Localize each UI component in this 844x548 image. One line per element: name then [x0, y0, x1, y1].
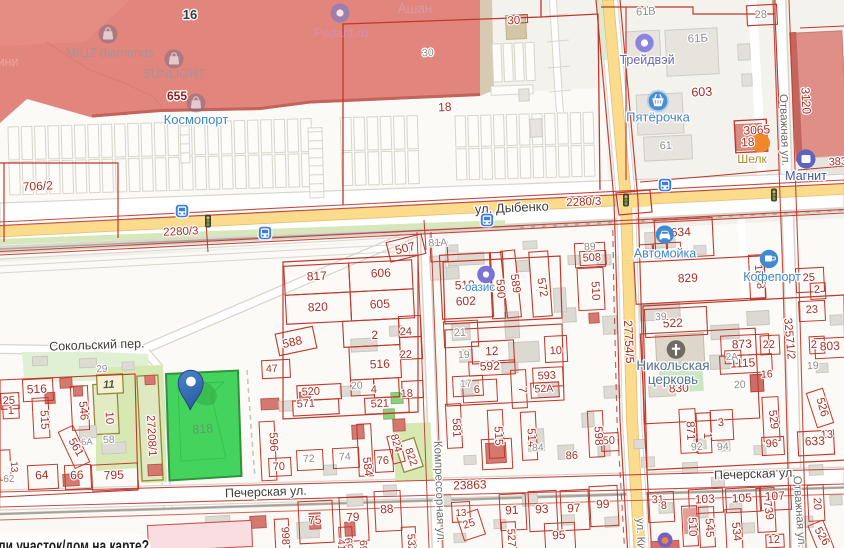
svg-text:21: 21: [453, 327, 466, 340]
svg-text:508: 508: [582, 252, 601, 265]
svg-text:84: 84: [532, 442, 544, 455]
svg-text:27208/1: 27208/1: [144, 415, 158, 457]
svg-text:19: 19: [458, 349, 470, 362]
svg-text:61Б: 61Б: [687, 32, 708, 45]
svg-text:Трейдвэй: Трейдвэй: [619, 53, 674, 67]
svg-text:Пятёрочка: Пятёрочка: [626, 110, 690, 125]
svg-text:76: 76: [376, 455, 389, 468]
svg-text:602: 602: [455, 293, 476, 308]
svg-text:2: 2: [810, 339, 817, 351]
svg-text:99: 99: [596, 497, 610, 512]
svg-text:545: 545: [703, 518, 716, 538]
svg-text:871: 871: [684, 421, 697, 441]
svg-text:3120: 3120: [798, 87, 813, 115]
svg-text:Магнит: Магнит: [785, 169, 827, 183]
svg-text:7: 7: [516, 386, 528, 393]
svg-text:70: 70: [272, 461, 285, 474]
svg-text:ул. Ки: ул. Ки: [633, 518, 646, 548]
svg-text:10: 10: [549, 345, 562, 358]
svg-text:605: 605: [369, 296, 390, 311]
svg-text:12: 12: [767, 534, 780, 547]
svg-text:8: 8: [660, 500, 667, 512]
svg-text:13: 13: [8, 461, 20, 473]
svg-text:2280/3: 2280/3: [163, 225, 199, 239]
svg-text:17: 17: [460, 378, 472, 391]
svg-text:61: 61: [659, 140, 672, 153]
svg-text:515: 515: [492, 426, 505, 446]
svg-text:Печерская ул.: Печерская ул.: [714, 466, 796, 483]
svg-text:75: 75: [308, 513, 322, 528]
svg-text:795: 795: [103, 467, 124, 482]
svg-text:581: 581: [450, 418, 463, 438]
svg-text:817: 817: [306, 268, 327, 283]
svg-text:105: 105: [731, 490, 752, 505]
svg-text:ли участок/дом на карте?: ли участок/дом на карте?: [0, 538, 149, 548]
svg-text:96: 96: [765, 438, 778, 451]
svg-text:590: 590: [493, 279, 506, 299]
svg-text:16: 16: [761, 368, 773, 381]
svg-text:510: 510: [589, 281, 602, 301]
svg-text:86: 86: [565, 450, 578, 463]
svg-text:633: 633: [804, 433, 825, 448]
svg-text:Отважная ул.: Отважная ул.: [777, 94, 792, 166]
svg-text:39: 39: [655, 311, 667, 324]
svg-text:820: 820: [307, 299, 328, 314]
svg-text:510: 510: [686, 517, 699, 537]
svg-text:52А: 52А: [534, 383, 553, 396]
svg-text:516: 516: [26, 381, 47, 396]
svg-text:516: 516: [369, 356, 390, 371]
svg-text:20: 20: [734, 379, 746, 392]
svg-text:92: 92: [691, 441, 703, 454]
svg-text:89: 89: [584, 241, 596, 254]
svg-text:606: 606: [370, 265, 391, 280]
svg-text:12: 12: [485, 344, 499, 359]
svg-text:6А: 6А: [81, 437, 94, 449]
svg-text:22: 22: [399, 349, 412, 362]
svg-text:Кофепорт: Кофепорт: [743, 270, 801, 284]
svg-text:95: 95: [552, 528, 566, 543]
svg-text:584: 584: [360, 456, 374, 477]
svg-text:41: 41: [335, 539, 348, 548]
svg-text:72: 72: [303, 453, 315, 466]
svg-text:11: 11: [103, 379, 115, 392]
svg-text:SUNLIGHT: SUNLIGHT: [142, 67, 206, 81]
svg-text:61В: 61В: [636, 6, 656, 19]
svg-text:Никольская: Никольская: [636, 358, 709, 373]
svg-text:MIUZ diamonds: MIUZ diamonds: [66, 46, 154, 60]
svg-text:383: 383: [828, 156, 844, 169]
svg-text:97: 97: [567, 501, 581, 516]
svg-text:25: 25: [802, 272, 815, 285]
svg-text:94: 94: [717, 441, 729, 454]
svg-text:592: 592: [479, 358, 500, 373]
svg-text:69: 69: [357, 540, 370, 548]
svg-text:103: 103: [694, 491, 715, 506]
svg-text:88: 88: [380, 502, 394, 517]
svg-text:571: 571: [296, 398, 315, 411]
svg-text:64: 64: [35, 468, 49, 483]
svg-text:534: 534: [729, 522, 743, 543]
svg-text:24: 24: [399, 326, 412, 339]
svg-text:оазис: оазис: [465, 282, 495, 294]
svg-text:818: 818: [192, 421, 214, 436]
svg-text:18: 18: [741, 135, 755, 150]
svg-text:603: 603: [691, 84, 713, 99]
svg-text:529: 529: [766, 409, 780, 430]
svg-text:20: 20: [351, 380, 363, 393]
svg-text:91: 91: [505, 503, 519, 518]
svg-text:13: 13: [455, 508, 467, 520]
svg-text:873: 873: [731, 336, 752, 351]
svg-text:Ашан: Ашан: [398, 1, 433, 16]
svg-text:515: 515: [38, 410, 51, 430]
svg-text:74: 74: [339, 451, 351, 464]
svg-text:655: 655: [167, 89, 187, 103]
svg-text:Шелк: Шелк: [737, 152, 767, 166]
svg-text:829: 829: [677, 270, 698, 285]
svg-text:546: 546: [76, 401, 90, 421]
svg-text:4: 4: [370, 384, 377, 396]
svg-text:58: 58: [103, 434, 115, 447]
svg-text:532: 532: [405, 533, 418, 548]
svg-text:6: 6: [473, 384, 480, 396]
svg-text:23: 23: [805, 304, 818, 317]
svg-text:527: 527: [505, 528, 518, 547]
svg-text:79: 79: [346, 510, 360, 525]
svg-text:29: 29: [96, 364, 108, 376]
svg-text:18: 18: [400, 388, 413, 401]
svg-text:церковь: церковь: [648, 372, 698, 387]
svg-text:2280/3: 2280/3: [566, 196, 602, 210]
svg-text:593: 593: [537, 370, 556, 383]
svg-text:ини: ини: [0, 55, 18, 69]
svg-text:521: 521: [370, 398, 389, 411]
svg-text:598: 598: [592, 426, 605, 446]
svg-text:62: 62: [3, 474, 15, 486]
svg-text:20: 20: [811, 497, 824, 510]
svg-text:19: 19: [807, 360, 819, 373]
svg-text:Автомойка: Автомойка: [634, 247, 697, 261]
svg-text:Pedant.ru: Pedant.ru: [314, 26, 368, 40]
svg-text:803: 803: [819, 338, 840, 353]
svg-text:93: 93: [535, 502, 549, 517]
svg-text:520: 520: [301, 386, 320, 399]
svg-text:1: 1: [701, 432, 713, 439]
svg-text:30: 30: [422, 47, 434, 60]
svg-text:998: 998: [279, 526, 292, 545]
svg-text:1: 1: [7, 405, 14, 417]
svg-text:Печерская ул.: Печерская ул.: [225, 484, 307, 501]
svg-text:2: 2: [813, 284, 820, 296]
svg-text:18: 18: [438, 100, 452, 115]
svg-text:634: 634: [670, 224, 691, 239]
svg-text:3: 3: [717, 417, 724, 429]
svg-text:47: 47: [266, 363, 278, 376]
svg-text:16: 16: [183, 7, 197, 22]
svg-text:596: 596: [267, 432, 280, 452]
svg-text:22: 22: [762, 339, 775, 352]
svg-text:28: 28: [754, 9, 767, 22]
svg-text:706/2: 706/2: [22, 178, 53, 194]
svg-text:27754/5: 27754/5: [621, 320, 637, 364]
svg-text:2А: 2А: [725, 352, 738, 364]
svg-text:66: 66: [70, 468, 84, 483]
svg-text:Космопорт: Космопорт: [164, 112, 229, 127]
svg-text:10: 10: [103, 411, 116, 424]
svg-text:2: 2: [371, 328, 379, 342]
svg-text:23863: 23863: [453, 477, 487, 492]
svg-text:81А: 81А: [428, 237, 447, 250]
svg-text:30: 30: [507, 15, 520, 28]
